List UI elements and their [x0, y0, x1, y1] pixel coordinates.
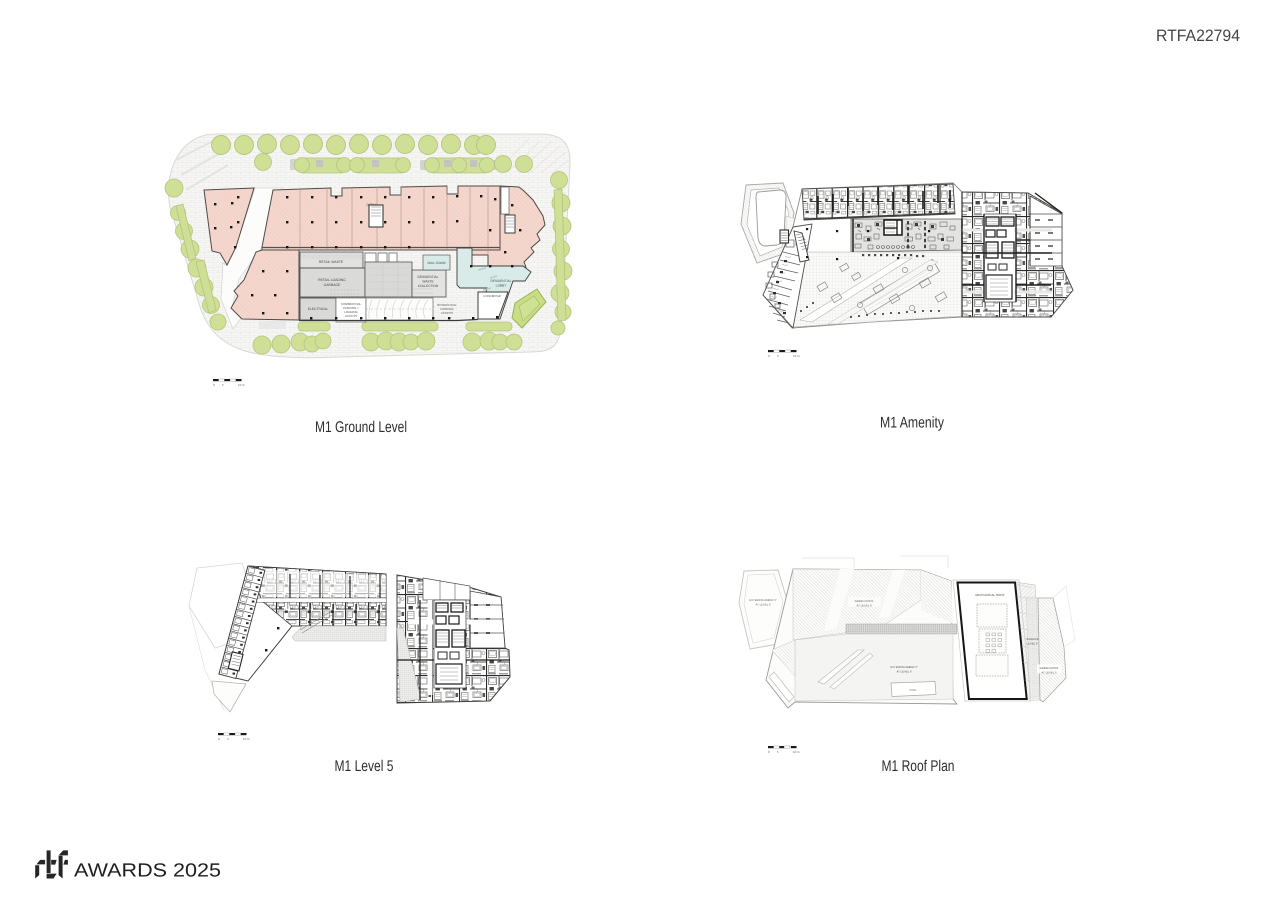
svg-text:WASTE: WASTE [422, 280, 433, 284]
svg-text:10 m: 10 m [793, 750, 800, 754]
svg-text:0: 0 [213, 383, 215, 387]
svg-text:AT LEVEL 6: AT LEVEL 6 [1041, 671, 1056, 675]
svg-text:AT LEVEL 6: AT LEVEL 6 [856, 604, 871, 608]
svg-text:POOL: POOL [909, 689, 917, 692]
svg-text:10 m: 10 m [238, 383, 245, 387]
svg-text:5: 5 [222, 383, 224, 387]
svg-text:AT LEVEL 6: AT LEVEL 6 [896, 670, 911, 674]
svg-text:EXTERIOR AMENITY: EXTERIOR AMENITY [749, 598, 776, 602]
svg-text:GREEN ROOF: GREEN ROOF [1040, 666, 1059, 670]
svg-text:CONCIERGE: CONCIERGE [483, 294, 501, 298]
svg-text:M1 Level 5: M1 Level 5 [335, 758, 394, 775]
svg-text:0: 0 [218, 737, 220, 741]
svg-text:5: 5 [227, 737, 229, 741]
svg-text:MAIL ROOM: MAIL ROOM [427, 261, 445, 265]
svg-text:COLLECTION: COLLECTION [418, 284, 439, 288]
svg-text:0: 0 [768, 354, 770, 358]
svg-text:RETAIL LOADING: RETAIL LOADING [318, 278, 346, 282]
svg-text:M1 Ground Level: M1 Ground Level [315, 419, 407, 436]
svg-text:GARBAGE: GARBAGE [324, 283, 342, 287]
svg-text:GREEN ROOF: GREEN ROOF [855, 599, 874, 603]
svg-text:ACCESS: ACCESS [345, 314, 357, 318]
svg-text:5: 5 [777, 354, 779, 358]
svg-text:5: 5 [777, 750, 779, 754]
svg-text:ACCESS: ACCESS [441, 311, 453, 315]
svg-text:AT LEVEL 6: AT LEVEL 6 [755, 603, 770, 607]
svg-text:RTFA22794: RTFA22794 [1156, 27, 1240, 45]
svg-text:MECHANICAL ROOF: MECHANICAL ROOF [975, 593, 1004, 597]
svg-text:LEVEL 6: LEVEL 6 [1027, 642, 1038, 646]
svg-text:AWARDS 2025: AWARDS 2025 [74, 861, 221, 882]
svg-text:10 m: 10 m [243, 737, 250, 741]
svg-text:EXTERIOR AMENITY: EXTERIOR AMENITY [890, 665, 917, 669]
svg-text:RESIDENTIAL: RESIDENTIAL [418, 275, 439, 279]
svg-text:M1 Roof Plan: M1 Roof Plan [882, 758, 955, 775]
svg-text:0: 0 [768, 750, 770, 754]
svg-text:LOBBY: LOBBY [496, 284, 508, 288]
svg-text:RESIDENTIAL: RESIDENTIAL [491, 279, 512, 283]
svg-text:ELECTRICAL: ELECTRICAL [308, 307, 329, 311]
svg-text:TERRACE: TERRACE [1025, 637, 1038, 641]
svg-text:RETAIL WASTE: RETAIL WASTE [319, 260, 344, 264]
svg-text:M1 Amenity: M1 Amenity [880, 415, 944, 432]
svg-text:10 m: 10 m [793, 354, 800, 358]
